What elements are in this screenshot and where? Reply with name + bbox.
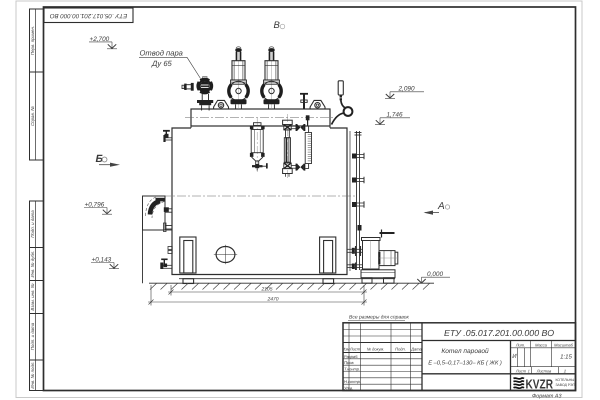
svg-text:И: И bbox=[512, 353, 517, 360]
svg-text:Разраб.: Разраб. bbox=[344, 354, 358, 359]
svg-text:Инв. № подл.: Инв. № подл. bbox=[30, 361, 35, 388]
svg-text:Инв. № дубл.: Инв. № дубл. bbox=[30, 250, 35, 277]
svg-text:Изм: Изм bbox=[342, 347, 350, 352]
svg-text:Лист: Лист bbox=[515, 368, 527, 373]
svg-text:Листов: Листов bbox=[536, 368, 552, 373]
svg-text:Отвод пара: Отвод пара bbox=[140, 49, 183, 58]
svg-text:Т.контр.: Т.контр. bbox=[344, 367, 360, 372]
svg-text:Лит.: Лит. bbox=[515, 342, 525, 347]
svg-text:Перв. примен.: Перв. примен. bbox=[30, 26, 35, 55]
svg-text:1:15: 1:15 bbox=[560, 354, 572, 361]
svg-text:№ докум.: № докум. bbox=[367, 347, 385, 352]
svg-text:Масштаб: Масштаб bbox=[554, 342, 573, 347]
svg-text:Е –0,5–0,17–130– КБ ( ЖК ): Е –0,5–0,17–130– КБ ( ЖК ) bbox=[428, 360, 502, 367]
svg-text:1: 1 bbox=[528, 368, 530, 373]
svg-text:Дата: Дата bbox=[410, 347, 422, 352]
svg-text:1,746: 1,746 bbox=[387, 112, 403, 119]
svg-text:Подп. и дата: Подп. и дата bbox=[30, 210, 35, 238]
svg-text:КОТЕЛЬНЫЙ: КОТЕЛЬНЫЙ bbox=[556, 377, 578, 382]
svg-text:Подп. и дата: Подп. и дата bbox=[30, 322, 35, 350]
svg-text:2105: 2105 bbox=[260, 287, 272, 293]
svg-text:Пров.: Пров. bbox=[344, 360, 355, 365]
svg-text:Котел паровой: Котел паровой bbox=[441, 348, 489, 355]
svg-text:ЕТУ .05.017.201.00.000 ВО: ЕТУ .05.017.201.00.000 ВО bbox=[444, 328, 554, 338]
svg-text:Утв.: Утв. bbox=[344, 386, 353, 391]
svg-text:Подп.: Подп. bbox=[395, 347, 406, 352]
svg-text:ЕТУ .05.017.201.00.000 ВО: ЕТУ .05.017.201.00.000 ВО bbox=[50, 12, 128, 19]
svg-text:Формат А3: Формат А3 bbox=[532, 394, 562, 400]
svg-text:Ду 65: Ду 65 bbox=[151, 59, 173, 68]
svg-text:Н.контр.: Н.контр. bbox=[344, 379, 361, 384]
svg-text:Справ. №: Справ. № bbox=[30, 106, 35, 126]
svg-text:В: В bbox=[274, 20, 281, 31]
svg-text:Все размеры для справок: Все размеры для справок bbox=[349, 315, 410, 321]
svg-text:2470: 2470 bbox=[266, 297, 278, 303]
svg-text:KVZR: KVZR bbox=[526, 377, 554, 392]
svg-text:Взам. инв. №: Взам. инв. № bbox=[30, 283, 35, 310]
svg-text:А: А bbox=[437, 201, 445, 212]
svg-text:Масса: Масса bbox=[535, 342, 548, 347]
svg-text:ЗАВОД РЭП: ЗАВОД РЭП bbox=[556, 383, 576, 387]
svg-text:2,090: 2,090 bbox=[398, 86, 415, 93]
svg-text:Лист: Лист bbox=[349, 347, 361, 352]
